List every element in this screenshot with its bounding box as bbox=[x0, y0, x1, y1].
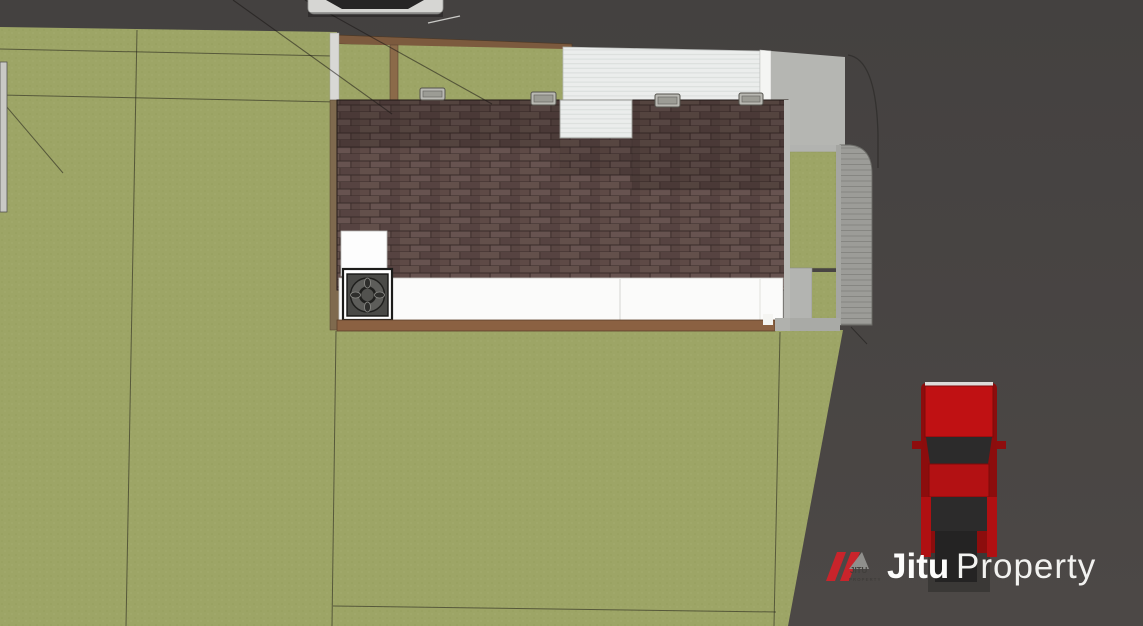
red-car-hood bbox=[925, 386, 993, 437]
siteplan-render: JITU PROPERTY Jitu Property bbox=[0, 0, 1143, 626]
patio-step bbox=[763, 314, 773, 325]
courtyard-right-wall bbox=[836, 145, 841, 325]
brand-name-secondary: Property bbox=[956, 547, 1096, 586]
logo-text-bottom: PROPERTY bbox=[849, 577, 882, 582]
roof-ridge-left bbox=[337, 100, 560, 148]
deck-edge-gray-end bbox=[775, 318, 790, 331]
roof-step-middle bbox=[560, 138, 632, 175]
stove-knob-left bbox=[351, 292, 361, 298]
red-car-front-trim bbox=[925, 382, 993, 386]
stove-cooktop bbox=[343, 269, 392, 320]
red-car-roof bbox=[929, 464, 989, 497]
carport-roof bbox=[563, 47, 760, 100]
stove-knob-bottom bbox=[365, 302, 371, 312]
stove-knob-top bbox=[365, 278, 371, 288]
door-mat bbox=[420, 88, 445, 100]
stove-burner-center bbox=[360, 288, 375, 303]
left-edge-object bbox=[0, 62, 7, 212]
paver-curb-strip bbox=[840, 145, 872, 325]
logo-text-top: JITU bbox=[850, 566, 868, 575]
red-car-windshield bbox=[926, 437, 992, 464]
front-yard-grass bbox=[339, 44, 565, 100]
courtyard-grass bbox=[790, 152, 836, 268]
siteplan-canvas: JITU PROPERTY Jitu Property bbox=[0, 0, 1143, 626]
carport-opening bbox=[560, 100, 632, 138]
house-left-wall-upper bbox=[330, 33, 339, 100]
fence-post bbox=[390, 45, 398, 101]
roof-ridge-right bbox=[632, 100, 788, 190]
house-right-wall bbox=[784, 100, 790, 330]
stove-knob-right bbox=[375, 292, 385, 298]
door-mat bbox=[739, 93, 763, 105]
courtyard-grass-small bbox=[812, 272, 836, 320]
lawn-left bbox=[0, 27, 337, 626]
brand-name-primary: Jitu bbox=[887, 547, 949, 586]
patio-terrace bbox=[339, 278, 783, 322]
red-car-mirror-left bbox=[912, 441, 922, 449]
white-car-windshield bbox=[326, 0, 424, 9]
red-car-mirror-right bbox=[996, 441, 1006, 449]
white-car-shadow bbox=[308, 12, 443, 17]
door-mat bbox=[655, 94, 680, 107]
carport-side-wall bbox=[760, 50, 771, 100]
courtyard-bottom-wall bbox=[788, 318, 840, 331]
courtyard-path bbox=[788, 268, 812, 324]
deck-edge bbox=[337, 320, 775, 331]
red-car-rear-window bbox=[931, 497, 987, 531]
lawn-bottom bbox=[333, 330, 843, 626]
door-mat bbox=[531, 92, 556, 105]
